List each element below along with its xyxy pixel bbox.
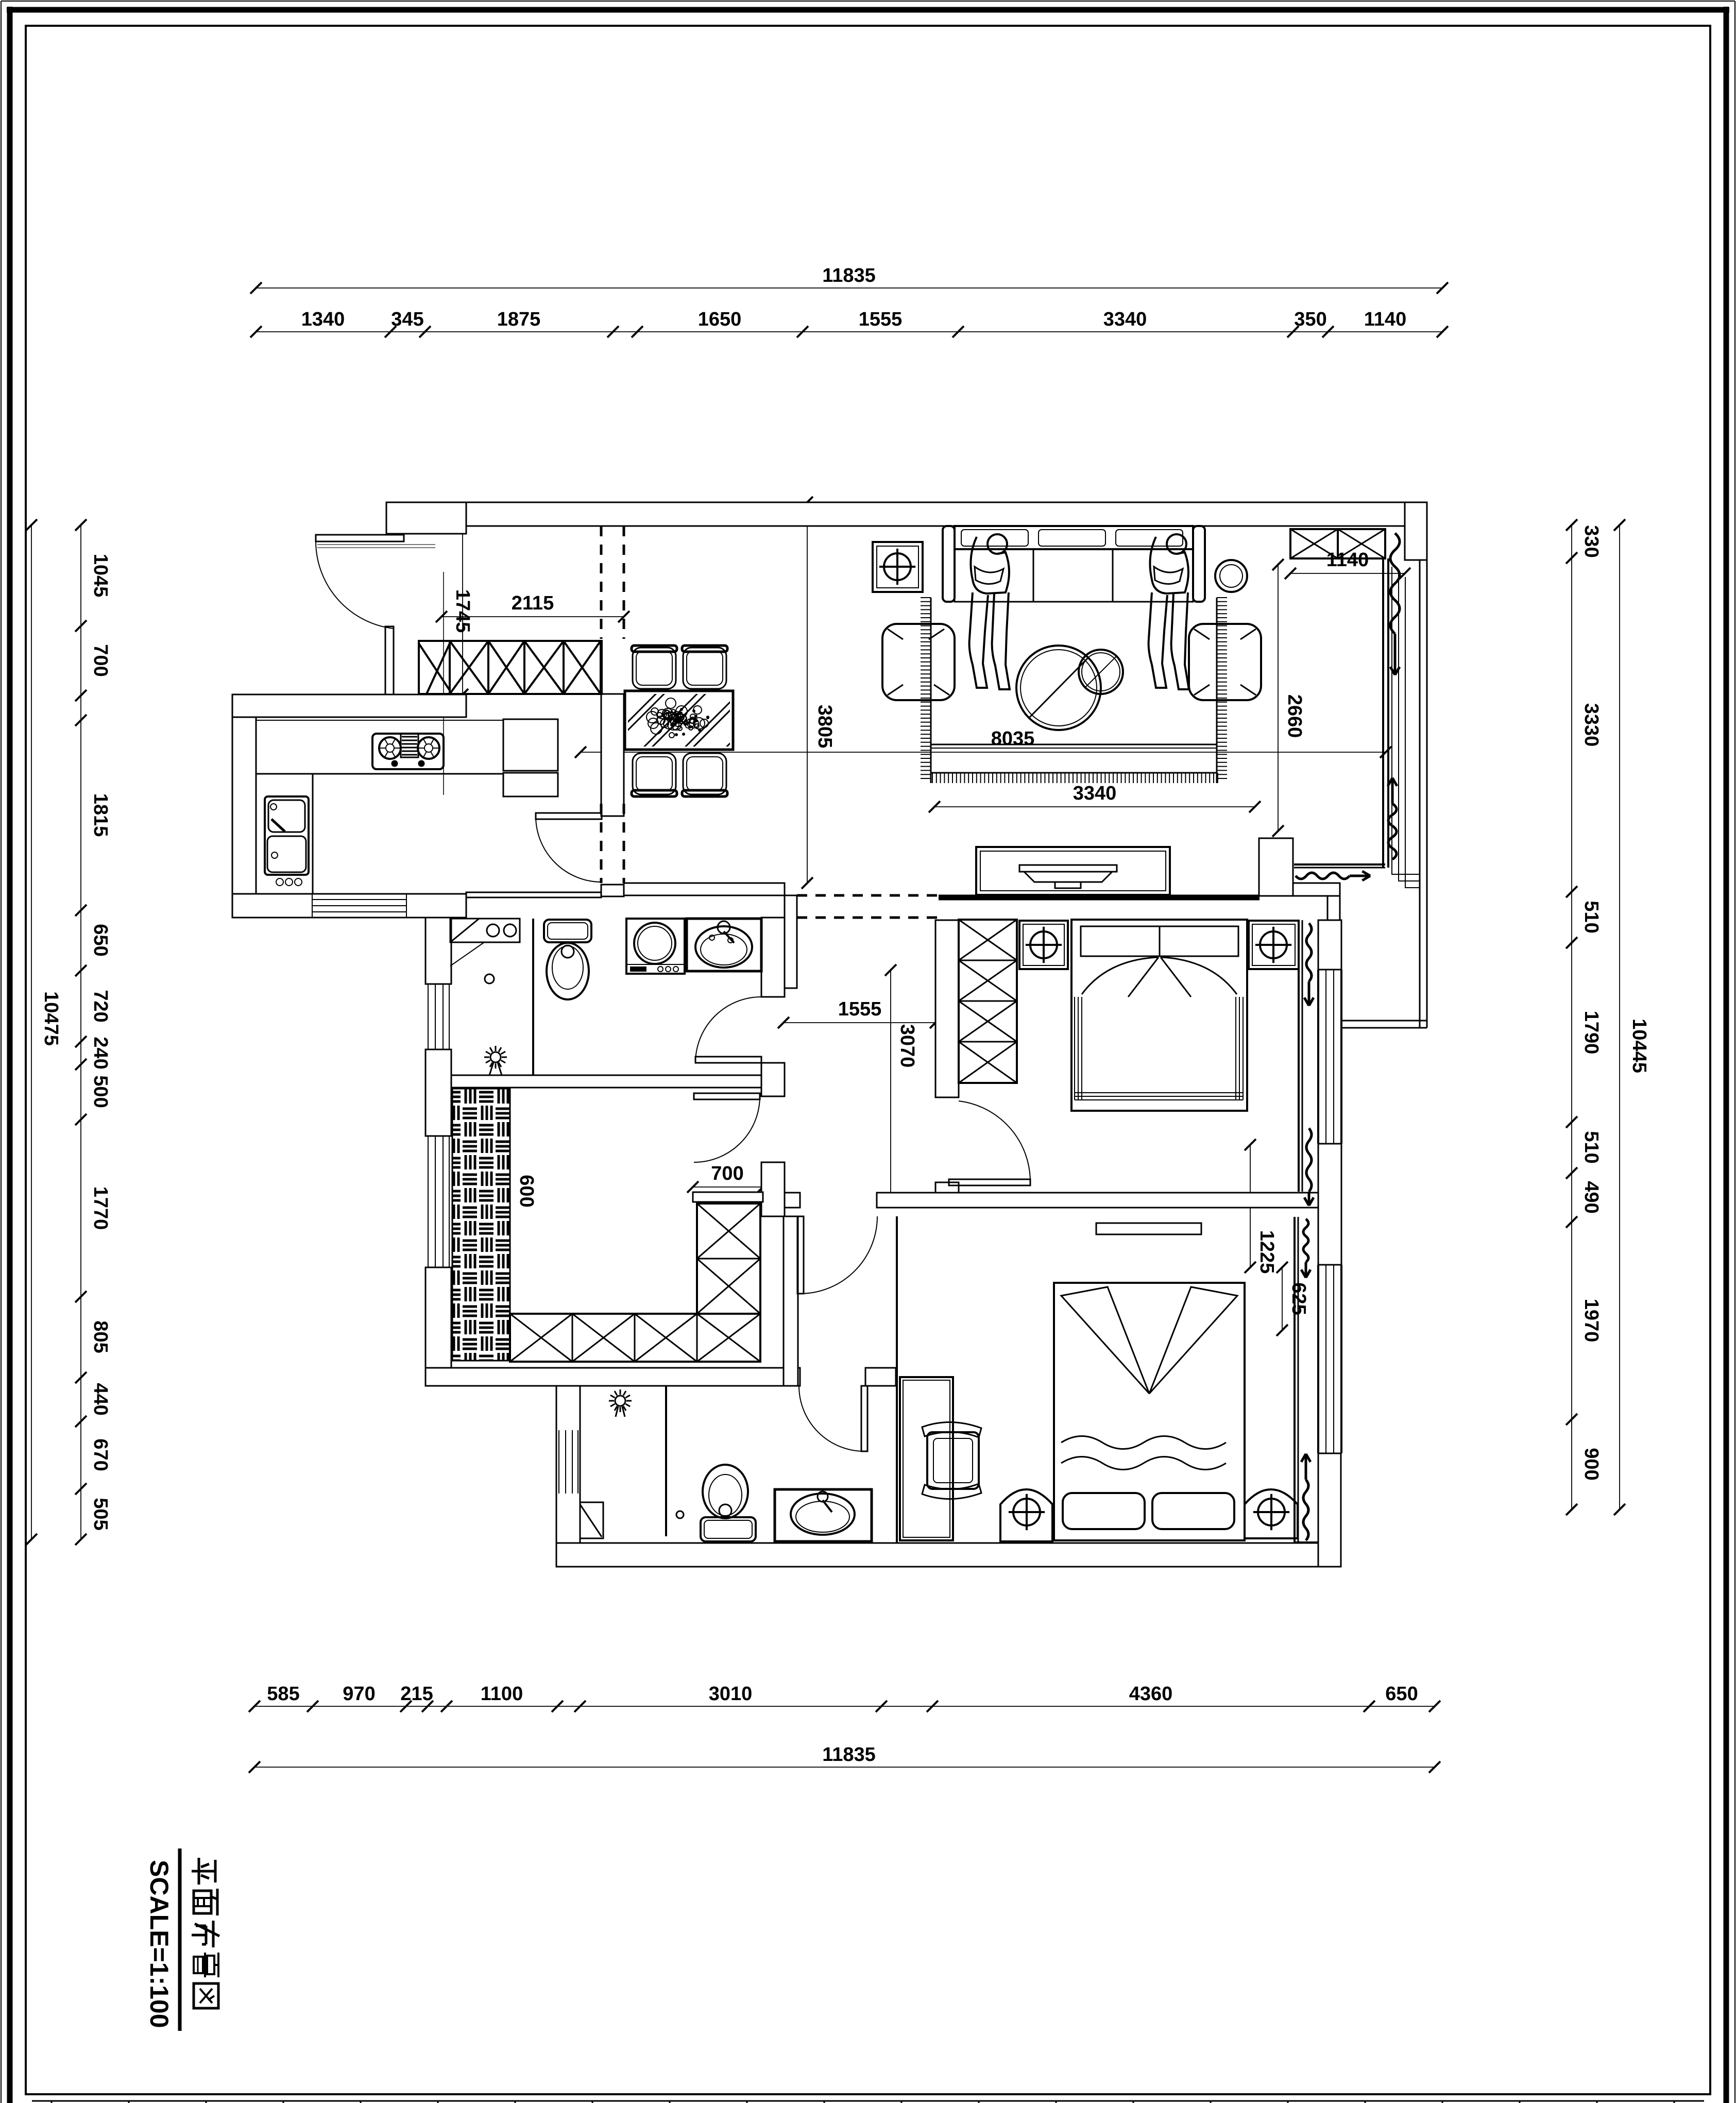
svg-text:10475: 10475: [40, 991, 62, 1046]
svg-text:650: 650: [90, 924, 111, 956]
svg-text:345: 345: [391, 309, 423, 330]
svg-text:1225: 1225: [1256, 1230, 1278, 1274]
svg-text:3070: 3070: [896, 1024, 918, 1068]
svg-text:3340: 3340: [1103, 309, 1147, 330]
svg-text:1555: 1555: [838, 998, 882, 1020]
svg-text:8035: 8035: [991, 728, 1035, 750]
svg-text:350: 350: [1294, 309, 1326, 330]
svg-text:805: 805: [90, 1320, 111, 1353]
svg-text:440: 440: [90, 1383, 111, 1415]
svg-text:1745: 1745: [452, 589, 473, 633]
svg-text:585: 585: [267, 1683, 299, 1705]
svg-text:330: 330: [1580, 525, 1602, 557]
svg-text:215: 215: [400, 1683, 433, 1705]
svg-text:1045: 1045: [90, 554, 111, 598]
svg-text:11835: 11835: [822, 265, 876, 286]
svg-text:10445: 10445: [1628, 1019, 1650, 1073]
svg-text:3330: 3330: [1580, 703, 1602, 747]
svg-text:2660: 2660: [1284, 694, 1305, 738]
svg-text:510: 510: [1580, 1131, 1602, 1163]
svg-text:1650: 1650: [698, 309, 742, 330]
svg-text:500: 500: [90, 1075, 111, 1108]
svg-text:3340: 3340: [1073, 783, 1117, 804]
svg-text:3010: 3010: [709, 1683, 753, 1705]
svg-text:670: 670: [90, 1438, 111, 1471]
svg-text:1140: 1140: [1364, 309, 1406, 330]
svg-text:1340: 1340: [301, 309, 345, 330]
svg-text:970: 970: [343, 1683, 375, 1705]
svg-text:720: 720: [90, 990, 111, 1022]
svg-text:700: 700: [90, 644, 111, 676]
svg-text:SCALE=1:100: SCALE=1:100: [145, 1860, 174, 2028]
svg-text:11835: 11835: [822, 1744, 876, 1766]
svg-text:2115: 2115: [512, 592, 554, 614]
svg-text:1555: 1555: [859, 309, 903, 330]
svg-text:700: 700: [711, 1163, 743, 1184]
svg-text:240: 240: [90, 1037, 111, 1069]
svg-text:3805: 3805: [814, 705, 836, 749]
svg-text:650: 650: [1385, 1683, 1418, 1705]
svg-text:4360: 4360: [1129, 1683, 1173, 1705]
svg-text:900: 900: [1580, 1448, 1602, 1480]
svg-text:1970: 1970: [1580, 1299, 1602, 1343]
svg-text:1815: 1815: [90, 793, 111, 837]
svg-text:490: 490: [1580, 1181, 1602, 1213]
svg-text:1790: 1790: [1580, 1011, 1602, 1055]
svg-text:1875: 1875: [497, 309, 541, 330]
svg-text:600: 600: [516, 1175, 537, 1207]
svg-text:510: 510: [1580, 901, 1602, 933]
svg-text:1100: 1100: [481, 1683, 523, 1705]
svg-text:505: 505: [90, 1498, 111, 1530]
svg-text:1770: 1770: [90, 1186, 111, 1230]
